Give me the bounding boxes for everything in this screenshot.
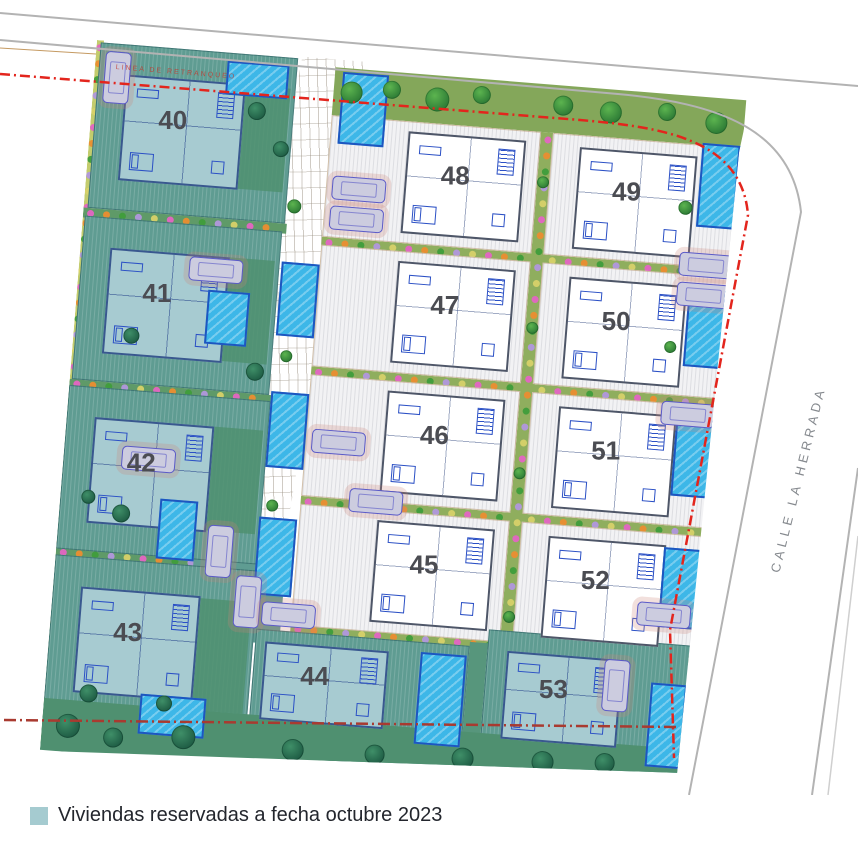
car — [232, 575, 262, 629]
car — [348, 488, 404, 516]
swimming-pool-49 — [696, 143, 741, 230]
stairs-icon — [476, 408, 495, 435]
table-icon — [481, 343, 495, 357]
flower-dot — [519, 439, 527, 447]
table-icon — [471, 473, 485, 487]
flower-dot — [522, 407, 530, 415]
bed-icon — [411, 205, 436, 225]
stairs-icon — [657, 294, 676, 321]
parcel-boundary-line — [0, 48, 96, 54]
table-icon — [461, 602, 475, 616]
stairs-icon — [216, 92, 235, 119]
swimming-pool-47 — [276, 262, 320, 339]
sofa-icon — [277, 653, 300, 664]
sofa-icon — [105, 431, 128, 442]
table-icon — [590, 721, 604, 735]
stairs-icon — [171, 604, 190, 631]
car — [188, 256, 244, 284]
flower-dot — [537, 216, 545, 224]
sofa-icon — [398, 404, 421, 415]
flower-dot — [514, 503, 522, 511]
table-icon — [663, 229, 677, 243]
bed-icon — [380, 594, 405, 614]
swimming-pool-41 — [204, 290, 250, 347]
plot-number-46: 46 — [419, 420, 448, 451]
flower-dot — [541, 168, 549, 176]
street-name-label: CALLE LA HERRADA — [765, 375, 831, 584]
flower-dot — [539, 200, 547, 208]
sofa-icon — [419, 145, 442, 156]
flower-dot — [513, 519, 521, 527]
tree — [451, 747, 475, 771]
plot-number-53: 53 — [539, 674, 568, 705]
swimming-pool-46 — [265, 391, 309, 470]
car — [102, 51, 132, 105]
bed-icon — [401, 335, 426, 355]
bed-icon — [551, 610, 576, 630]
stairs-icon — [486, 278, 505, 305]
stairs-icon — [359, 657, 378, 684]
car — [678, 251, 734, 279]
plot-number-50: 50 — [601, 306, 630, 337]
plot-number-40: 40 — [159, 105, 188, 136]
sofa-icon — [559, 550, 582, 561]
stairs-icon — [465, 537, 484, 564]
flower-dot — [536, 232, 544, 240]
car — [660, 400, 716, 428]
plot-number-42: 42 — [127, 448, 156, 479]
flower-dot — [524, 375, 532, 383]
car — [601, 659, 631, 713]
bed-icon — [572, 350, 597, 370]
plot-number-52: 52 — [580, 565, 609, 596]
swimming-pool-42 — [156, 499, 199, 562]
flower-dot — [527, 344, 535, 352]
legend: Viviendas reservadas a fecha octubre 202… — [30, 804, 442, 827]
car — [311, 429, 367, 457]
plot-number-43: 43 — [113, 617, 142, 648]
table-icon — [642, 489, 656, 503]
flower-dot — [510, 551, 518, 559]
sofa-icon — [518, 663, 541, 674]
table-icon — [492, 214, 506, 228]
sofa-icon — [121, 262, 144, 273]
stairs-icon — [184, 435, 203, 462]
flower-dot — [512, 535, 520, 543]
flower-dot — [535, 248, 543, 256]
flower-dot — [508, 583, 516, 591]
stairs-icon — [497, 148, 516, 175]
bed-icon — [583, 221, 608, 241]
sofa-icon — [409, 275, 432, 286]
site-plan: 4041424344454647484950515253 CALLE LA HE… — [0, 0, 858, 843]
flower-dot — [518, 455, 526, 463]
sofa-icon — [580, 290, 603, 301]
flower-dot — [533, 264, 541, 272]
bed-icon — [84, 664, 109, 684]
bed-icon — [562, 480, 587, 500]
stairs-icon — [647, 423, 666, 450]
table-icon — [211, 160, 225, 174]
flower-dot — [526, 359, 534, 367]
plot-number-47: 47 — [430, 290, 459, 321]
car — [329, 205, 385, 233]
right-street-extra-line — [828, 536, 858, 795]
flower-dot — [531, 296, 539, 304]
bed-icon — [511, 712, 536, 732]
plot-number-48: 48 — [440, 160, 469, 191]
plot-number-45: 45 — [409, 549, 438, 580]
legend-reserved-swatch — [30, 807, 48, 825]
car — [331, 175, 387, 203]
swimming-pool-53 — [645, 683, 688, 770]
sofa-icon — [570, 420, 593, 431]
legend-label: Viviendas reservadas a fecha octubre 202… — [58, 804, 442, 827]
car — [676, 281, 732, 309]
bed-icon — [390, 464, 415, 484]
car — [204, 525, 234, 579]
plot-number-44: 44 — [300, 661, 329, 692]
flower-dot — [509, 567, 517, 575]
flower-dot — [530, 312, 538, 320]
sofa-icon — [388, 534, 411, 545]
swimming-pool-44 — [414, 652, 467, 747]
flower-dot — [506, 599, 514, 607]
development-site: 4041424344454647484950515253 — [40, 40, 755, 803]
flower-dot — [532, 280, 540, 288]
table-icon — [653, 359, 667, 373]
right-street-far-line — [812, 468, 858, 795]
stairs-icon — [668, 164, 687, 191]
bed-icon — [129, 152, 154, 172]
flower-dot — [542, 152, 550, 160]
table-icon — [355, 703, 369, 717]
table-icon — [166, 672, 180, 686]
flower-dot — [523, 391, 531, 399]
tree — [531, 750, 555, 774]
stairs-icon — [637, 553, 656, 580]
sofa-icon — [137, 89, 160, 100]
flower-dot — [521, 423, 529, 431]
swimming-pool-51 — [670, 418, 714, 499]
flower-dot — [544, 136, 552, 144]
car — [636, 601, 692, 629]
flower-dot — [515, 487, 523, 495]
plot-number-49: 49 — [612, 176, 641, 207]
bed-icon — [270, 693, 295, 713]
plot-number-41: 41 — [143, 279, 172, 310]
car — [261, 601, 317, 629]
sofa-icon — [92, 601, 115, 612]
sofa-icon — [590, 161, 613, 172]
plot-number-51: 51 — [591, 435, 620, 466]
